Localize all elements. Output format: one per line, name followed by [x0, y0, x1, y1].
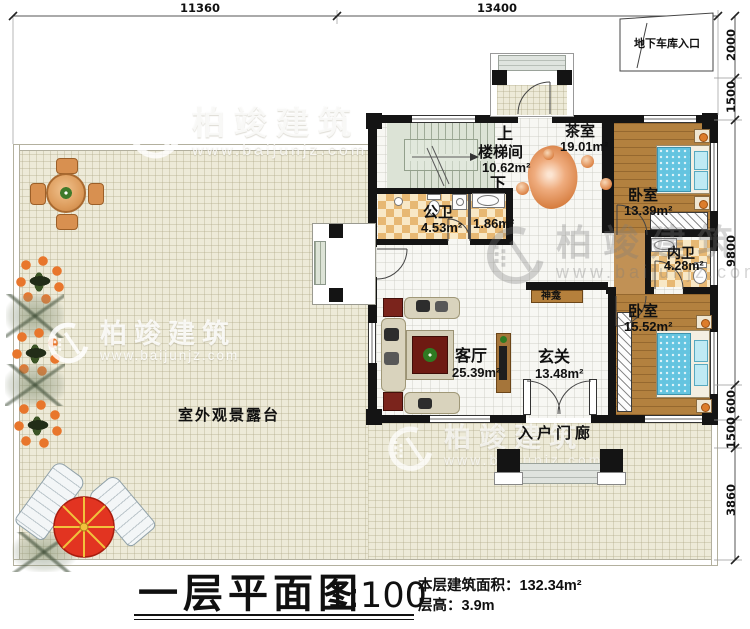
- terrace-label: 室外观景露台: [178, 408, 280, 425]
- patio-chair-south: [56, 214, 78, 230]
- title-underline: [134, 614, 414, 616]
- window: [430, 415, 490, 423]
- potted-plant: [423, 348, 437, 362]
- terrace-railing-top: [13, 144, 370, 151]
- window: [710, 332, 718, 394]
- sofa-cushion: [435, 301, 448, 312]
- side-table: [383, 298, 403, 317]
- bay-window-glass: [314, 241, 326, 285]
- ensuite-area: 4.28m²: [664, 260, 704, 274]
- sink-basin: [477, 195, 499, 206]
- dim-right-1500b: 1500: [724, 417, 738, 449]
- utility-area: 1.86m²: [473, 217, 514, 231]
- ceiling-lamp: [394, 197, 403, 206]
- tv-plant: [500, 336, 507, 343]
- living-room-label: 客厅: [455, 348, 487, 366]
- window: [644, 115, 696, 123]
- sofa: [404, 297, 460, 319]
- public-bath-area: 4.53m²: [421, 221, 462, 235]
- terrace-railing-right: [711, 423, 718, 566]
- garage-entry-label: 地下车库入口: [634, 35, 700, 51]
- dim-right-2000: 2000: [724, 29, 738, 61]
- bed-mattress: [657, 333, 691, 395]
- window: [710, 143, 718, 211]
- floor-plan: 柏竣建筑 www.baijunjz.com 柏竣建筑 www.baijunjz.…: [0, 0, 750, 629]
- fruit-plant: [14, 400, 62, 448]
- shrine-label: 神龛: [541, 291, 561, 302]
- floor-height-row: 层高：3.9m: [418, 599, 495, 615]
- floor-height-label: 层高：: [418, 598, 462, 614]
- side-table: [383, 392, 403, 411]
- pillow: [694, 171, 708, 190]
- porch-column-base: [597, 472, 626, 485]
- dim-top-left: 11360: [180, 1, 220, 15]
- nightstand: [694, 129, 710, 143]
- window: [645, 415, 703, 423]
- floor-area-row: 本层建筑面积：132.34m²: [418, 579, 582, 595]
- patio-chair-west: [30, 183, 46, 205]
- washing-machine-door: [456, 198, 464, 206]
- pillow: [694, 340, 708, 362]
- porch-column: [497, 449, 520, 472]
- sofa-cushion: [416, 300, 430, 312]
- corridor-floor: [614, 233, 645, 294]
- tea-decor-stone: [516, 182, 529, 195]
- foyer-area: 13.48m²: [535, 367, 583, 381]
- window: [710, 251, 718, 285]
- sofa-cushion: [418, 398, 432, 409]
- sofa-cushion: [384, 352, 399, 365]
- floor-area-value: 132.34m²: [520, 578, 582, 594]
- dim-right-1500a: 1500: [724, 81, 738, 113]
- terrace-floor-bottom: [368, 423, 718, 559]
- bedroom-bottom-area: 15.52m²: [624, 320, 672, 334]
- window: [368, 323, 376, 363]
- pillow: [694, 364, 708, 386]
- sofa: [404, 392, 460, 414]
- nightstand: [696, 399, 712, 413]
- floor-height-value: 3.9m: [462, 598, 495, 614]
- title-underline-2: [134, 619, 414, 620]
- foyer-label: 玄关: [538, 349, 570, 367]
- dim-top-right: 13400: [477, 1, 517, 15]
- sofa-cushion: [384, 328, 399, 341]
- plan-scale: 1:100: [326, 577, 427, 616]
- tea-decor-stone: [543, 149, 554, 160]
- stairwell-area: 10.62m²: [482, 161, 530, 175]
- pillow: [694, 151, 708, 170]
- back-porch-steps: [498, 55, 566, 71]
- umbrella: [51, 494, 117, 560]
- patio-table-plant: [60, 187, 72, 199]
- dim-right-3860: 3860: [724, 484, 738, 516]
- entry-door-leaf: [589, 379, 597, 415]
- entry-porch-label: 入户门廊: [518, 426, 594, 443]
- stair-landing-rail: [404, 139, 478, 171]
- patio-chair-north: [56, 158, 78, 174]
- tea-decor-stone: [600, 178, 612, 190]
- entry-door-leaf: [523, 379, 531, 415]
- stair-up-label: 上: [497, 126, 513, 144]
- entry-steps: [519, 463, 601, 484]
- nightstand: [696, 315, 712, 329]
- terrace-railing-bottom: [13, 559, 718, 566]
- stair-down-label: 下: [490, 176, 506, 194]
- floor-area-label: 本层建筑面积：: [418, 578, 520, 594]
- porch-column: [600, 449, 623, 472]
- tea-room-area: 19.01m²: [560, 140, 608, 154]
- dim-right-600: 600: [724, 390, 738, 414]
- back-porch-floor: [497, 85, 567, 115]
- window: [412, 115, 475, 123]
- bed-mattress: [657, 147, 691, 192]
- tea-decor-stone: [581, 155, 594, 168]
- dim-right-9800: 9800: [724, 235, 738, 267]
- patio-chair-east: [88, 183, 104, 205]
- watermark-brand: 柏竣建筑: [192, 106, 367, 141]
- bedroom-top-area: 13.39m²: [624, 204, 672, 218]
- nightstand: [694, 196, 710, 210]
- porch-column-base: [494, 472, 523, 485]
- living-room-area: 25.39m²: [452, 366, 500, 380]
